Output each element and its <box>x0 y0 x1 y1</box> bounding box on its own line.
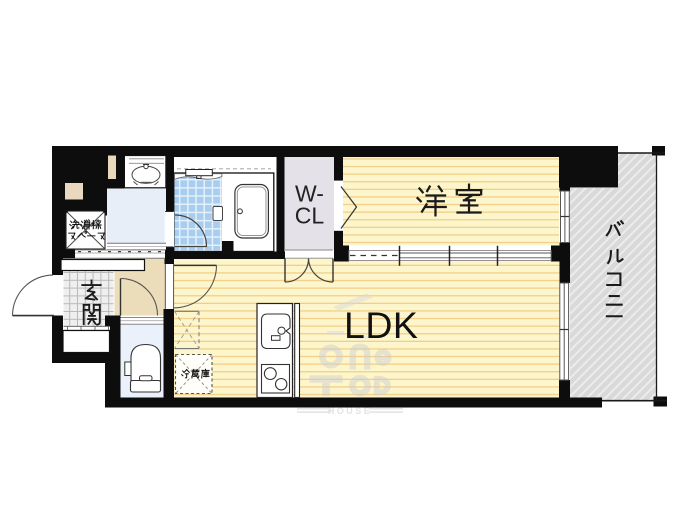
svg-text:LDK: LDK <box>344 304 418 346</box>
svg-text:CL: CL <box>295 203 325 229</box>
svg-text:HOUSE: HOUSE <box>328 406 373 416</box>
